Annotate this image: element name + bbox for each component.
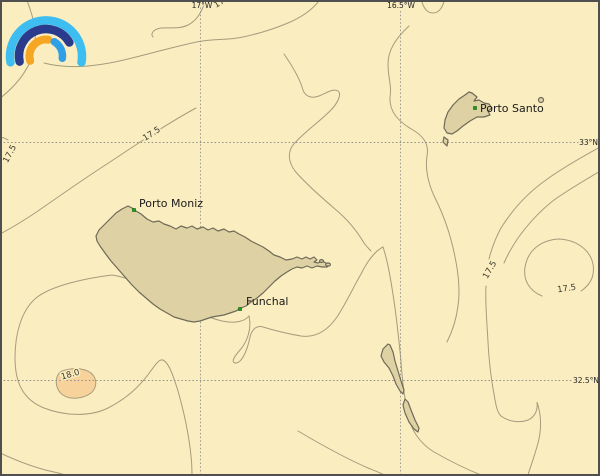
place-marker xyxy=(239,308,242,311)
map-frame: 17.5 17.5 17.5 17.5 17.5 18.0 17°W 16.5°… xyxy=(0,0,600,476)
place-label-porto-santo: Porto Santo xyxy=(480,102,544,115)
ocean-background xyxy=(0,0,600,476)
place-marker xyxy=(133,209,136,212)
longitude-label: 17°W xyxy=(192,1,213,10)
islet xyxy=(326,263,331,266)
islet xyxy=(320,260,324,263)
place-marker xyxy=(474,107,477,110)
latitude-label: 33°N xyxy=(579,138,598,147)
latitude-label: 32.5°N xyxy=(573,376,599,385)
place-label-funchal: Funchal xyxy=(246,295,289,308)
map-canvas: 17.5 17.5 17.5 17.5 17.5 18.0 17°W 16.5°… xyxy=(0,0,600,476)
place-label-porto-moniz: Porto Moniz xyxy=(139,197,203,210)
longitude-label: 16.5°W xyxy=(387,1,415,10)
